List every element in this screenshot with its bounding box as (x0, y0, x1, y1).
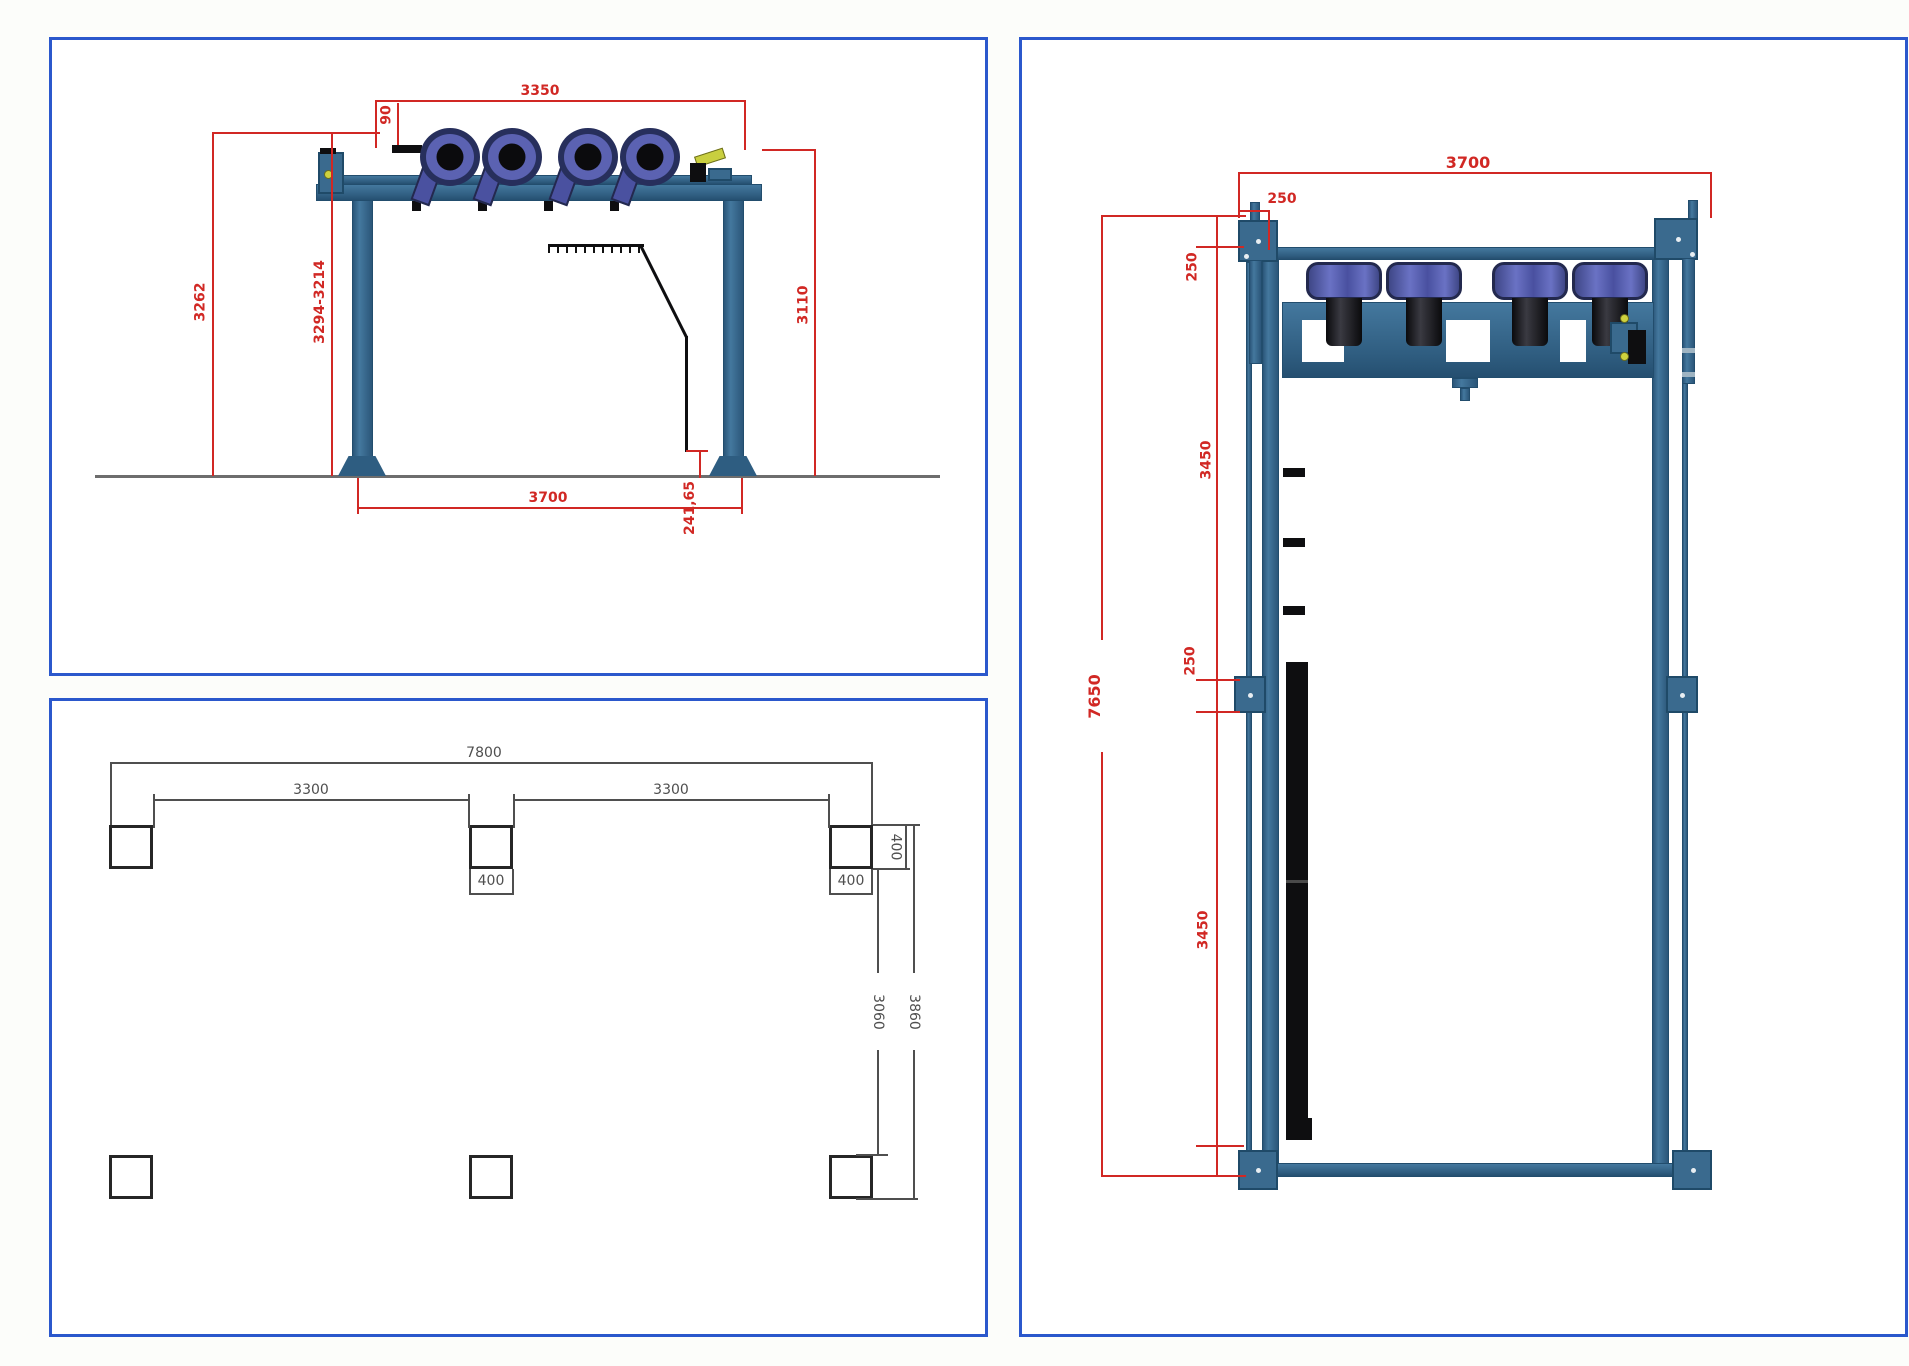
dim-connector (762, 149, 815, 151)
drawing-sheet: 3350 90 3262 3294-3214 3110 3700 241,65 … (0, 0, 1909, 1366)
dim-line (829, 893, 873, 895)
dim-ext (856, 1154, 888, 1156)
dim-line (212, 132, 214, 476)
beam-bottom (1254, 1163, 1678, 1177)
valve-dot (1620, 352, 1629, 361)
panel-plan-view (1019, 37, 1908, 1337)
reference-bar (392, 145, 422, 153)
dim-label-corner-offset: 250 (1252, 190, 1312, 208)
dim-line (1101, 215, 1103, 640)
dim-label-seg-mid: 250 (1181, 632, 1201, 690)
dim-label-seg-top: 250 (1183, 238, 1203, 296)
dim-line (905, 824, 907, 870)
foundation-pad (109, 1155, 153, 1199)
valve-dot (1620, 314, 1629, 323)
foundation-pad (829, 825, 873, 869)
dim-label-bay-right: 3300 (591, 781, 751, 799)
crossbeam (316, 184, 762, 201)
dim-label-pad-width-mid: 400 (461, 872, 521, 890)
dim-ext (744, 100, 746, 150)
rail-mark (1283, 468, 1305, 477)
blower-fan-top (1386, 262, 1462, 300)
guide-column-ring (1682, 348, 1695, 353)
right-hardware-block (690, 163, 706, 182)
dim-label-row-outer-span: 3860 (904, 972, 924, 1052)
dim-line (814, 149, 816, 476)
corner-plate-top-right (1654, 218, 1698, 260)
panel-foundation-plan (49, 698, 988, 1337)
dim-line (513, 799, 829, 801)
foundation-pad (469, 825, 513, 869)
beam-mount-nub (544, 201, 553, 211)
dim-label-pad-width-right: 400 (821, 872, 881, 890)
dim-line (469, 893, 514, 895)
right-hardware-plate (708, 168, 732, 181)
dim-ext (871, 762, 873, 825)
blower-fan (620, 128, 680, 186)
dim-label-height-range: 3294-3214 (310, 252, 330, 352)
left-hook (320, 148, 336, 154)
blower-fan-top (1572, 262, 1648, 300)
track-end-block (1286, 1118, 1312, 1140)
dim-label-seg-upper: 3450 (1196, 420, 1216, 500)
cable-track-joint (1286, 880, 1308, 883)
corner-plate-top-left (1238, 220, 1278, 262)
blower-fan-top (1492, 262, 1568, 300)
dim-connector (1102, 1175, 1246, 1177)
dim-label-row-clear-span: 3060 (868, 972, 888, 1052)
dim-label-height-left: 3262 (190, 262, 210, 342)
dim-tick (1196, 679, 1240, 681)
guide-column-right (1682, 258, 1695, 384)
beam-mount-nub (610, 201, 619, 211)
fan-motor (1406, 298, 1442, 346)
side-bracket-right (1666, 676, 1698, 713)
corner-plate-bottom-left (1238, 1150, 1278, 1190)
hose-vertical (685, 336, 688, 452)
cable-track (1286, 662, 1308, 1138)
dim-ext (110, 762, 112, 825)
blower-fan (558, 128, 618, 186)
hose-teeth (548, 246, 642, 253)
dim-line (913, 824, 915, 973)
foundation-pad (469, 1155, 513, 1199)
dim-label-total-length: 7650 (1084, 650, 1104, 742)
dim-ext (153, 794, 155, 828)
dim-label-seg-lower: 3450 (1193, 890, 1213, 970)
beam-top (1250, 247, 1670, 260)
dim-line (1216, 215, 1218, 1177)
dim-line (397, 103, 399, 145)
carriage-window (1560, 320, 1586, 362)
rail-mark (1283, 538, 1305, 547)
dim-connector (212, 132, 380, 134)
dim-tick (686, 450, 708, 452)
dim-line (1101, 752, 1103, 1177)
corner-plate-bottom-right (1672, 1150, 1712, 1190)
dim-label-plan-width: 3700 (1388, 153, 1548, 171)
foundation-pad (109, 825, 153, 869)
dim-line (1238, 172, 1712, 174)
foundation-pad (829, 1155, 873, 1199)
gantry-leg-left (352, 196, 373, 458)
guide-column-ring (1682, 372, 1695, 377)
dim-label-nozzle-offset: 90 (378, 96, 396, 134)
dim-tick (1196, 246, 1244, 248)
dim-label-total-width: 7800 (404, 744, 564, 762)
dim-ext (856, 1198, 918, 1200)
dim-ext (357, 478, 359, 514)
side-bracket-left (1234, 676, 1266, 713)
dim-ext (513, 794, 515, 828)
dim-line (877, 869, 879, 973)
guide-column-left (1249, 260, 1262, 364)
dim-ext (468, 794, 470, 828)
dim-tick (1196, 711, 1240, 713)
dim-line (913, 1050, 915, 1199)
valve-body (1628, 330, 1646, 364)
dim-label-base-width: 3700 (468, 489, 628, 507)
dim-label-pad-height: 400 (886, 824, 904, 870)
gantry-leg-right (723, 196, 744, 458)
carriage-window (1446, 320, 1490, 362)
blower-fan (482, 128, 542, 186)
dim-line (110, 762, 873, 764)
fan-motor (1326, 298, 1362, 346)
dim-ext (1710, 172, 1712, 218)
dim-label-height-right: 3110 (793, 265, 813, 345)
blower-fan-top (1306, 262, 1382, 300)
rail-mark (1283, 606, 1305, 615)
dim-label-top-width: 3350 (460, 82, 620, 100)
dim-line (877, 1050, 879, 1156)
dim-line (331, 132, 333, 476)
carriage-tab (1460, 388, 1470, 401)
dim-line (153, 799, 469, 801)
dim-ext (828, 794, 830, 828)
hose-horizontal (548, 244, 644, 247)
dim-ext (1268, 210, 1270, 250)
dim-label-bay-left: 3300 (231, 781, 391, 799)
dim-ext (375, 100, 377, 148)
dim-tick (1196, 1145, 1244, 1147)
fan-motor (1512, 298, 1548, 346)
dim-line (1238, 210, 1270, 212)
carriage-tab (1452, 378, 1478, 388)
dim-line (375, 100, 745, 102)
dim-label-hose-clearance: 241,65 (680, 468, 700, 548)
blower-fan (420, 128, 480, 186)
dim-connector (1102, 215, 1246, 217)
dim-ext (741, 478, 743, 514)
